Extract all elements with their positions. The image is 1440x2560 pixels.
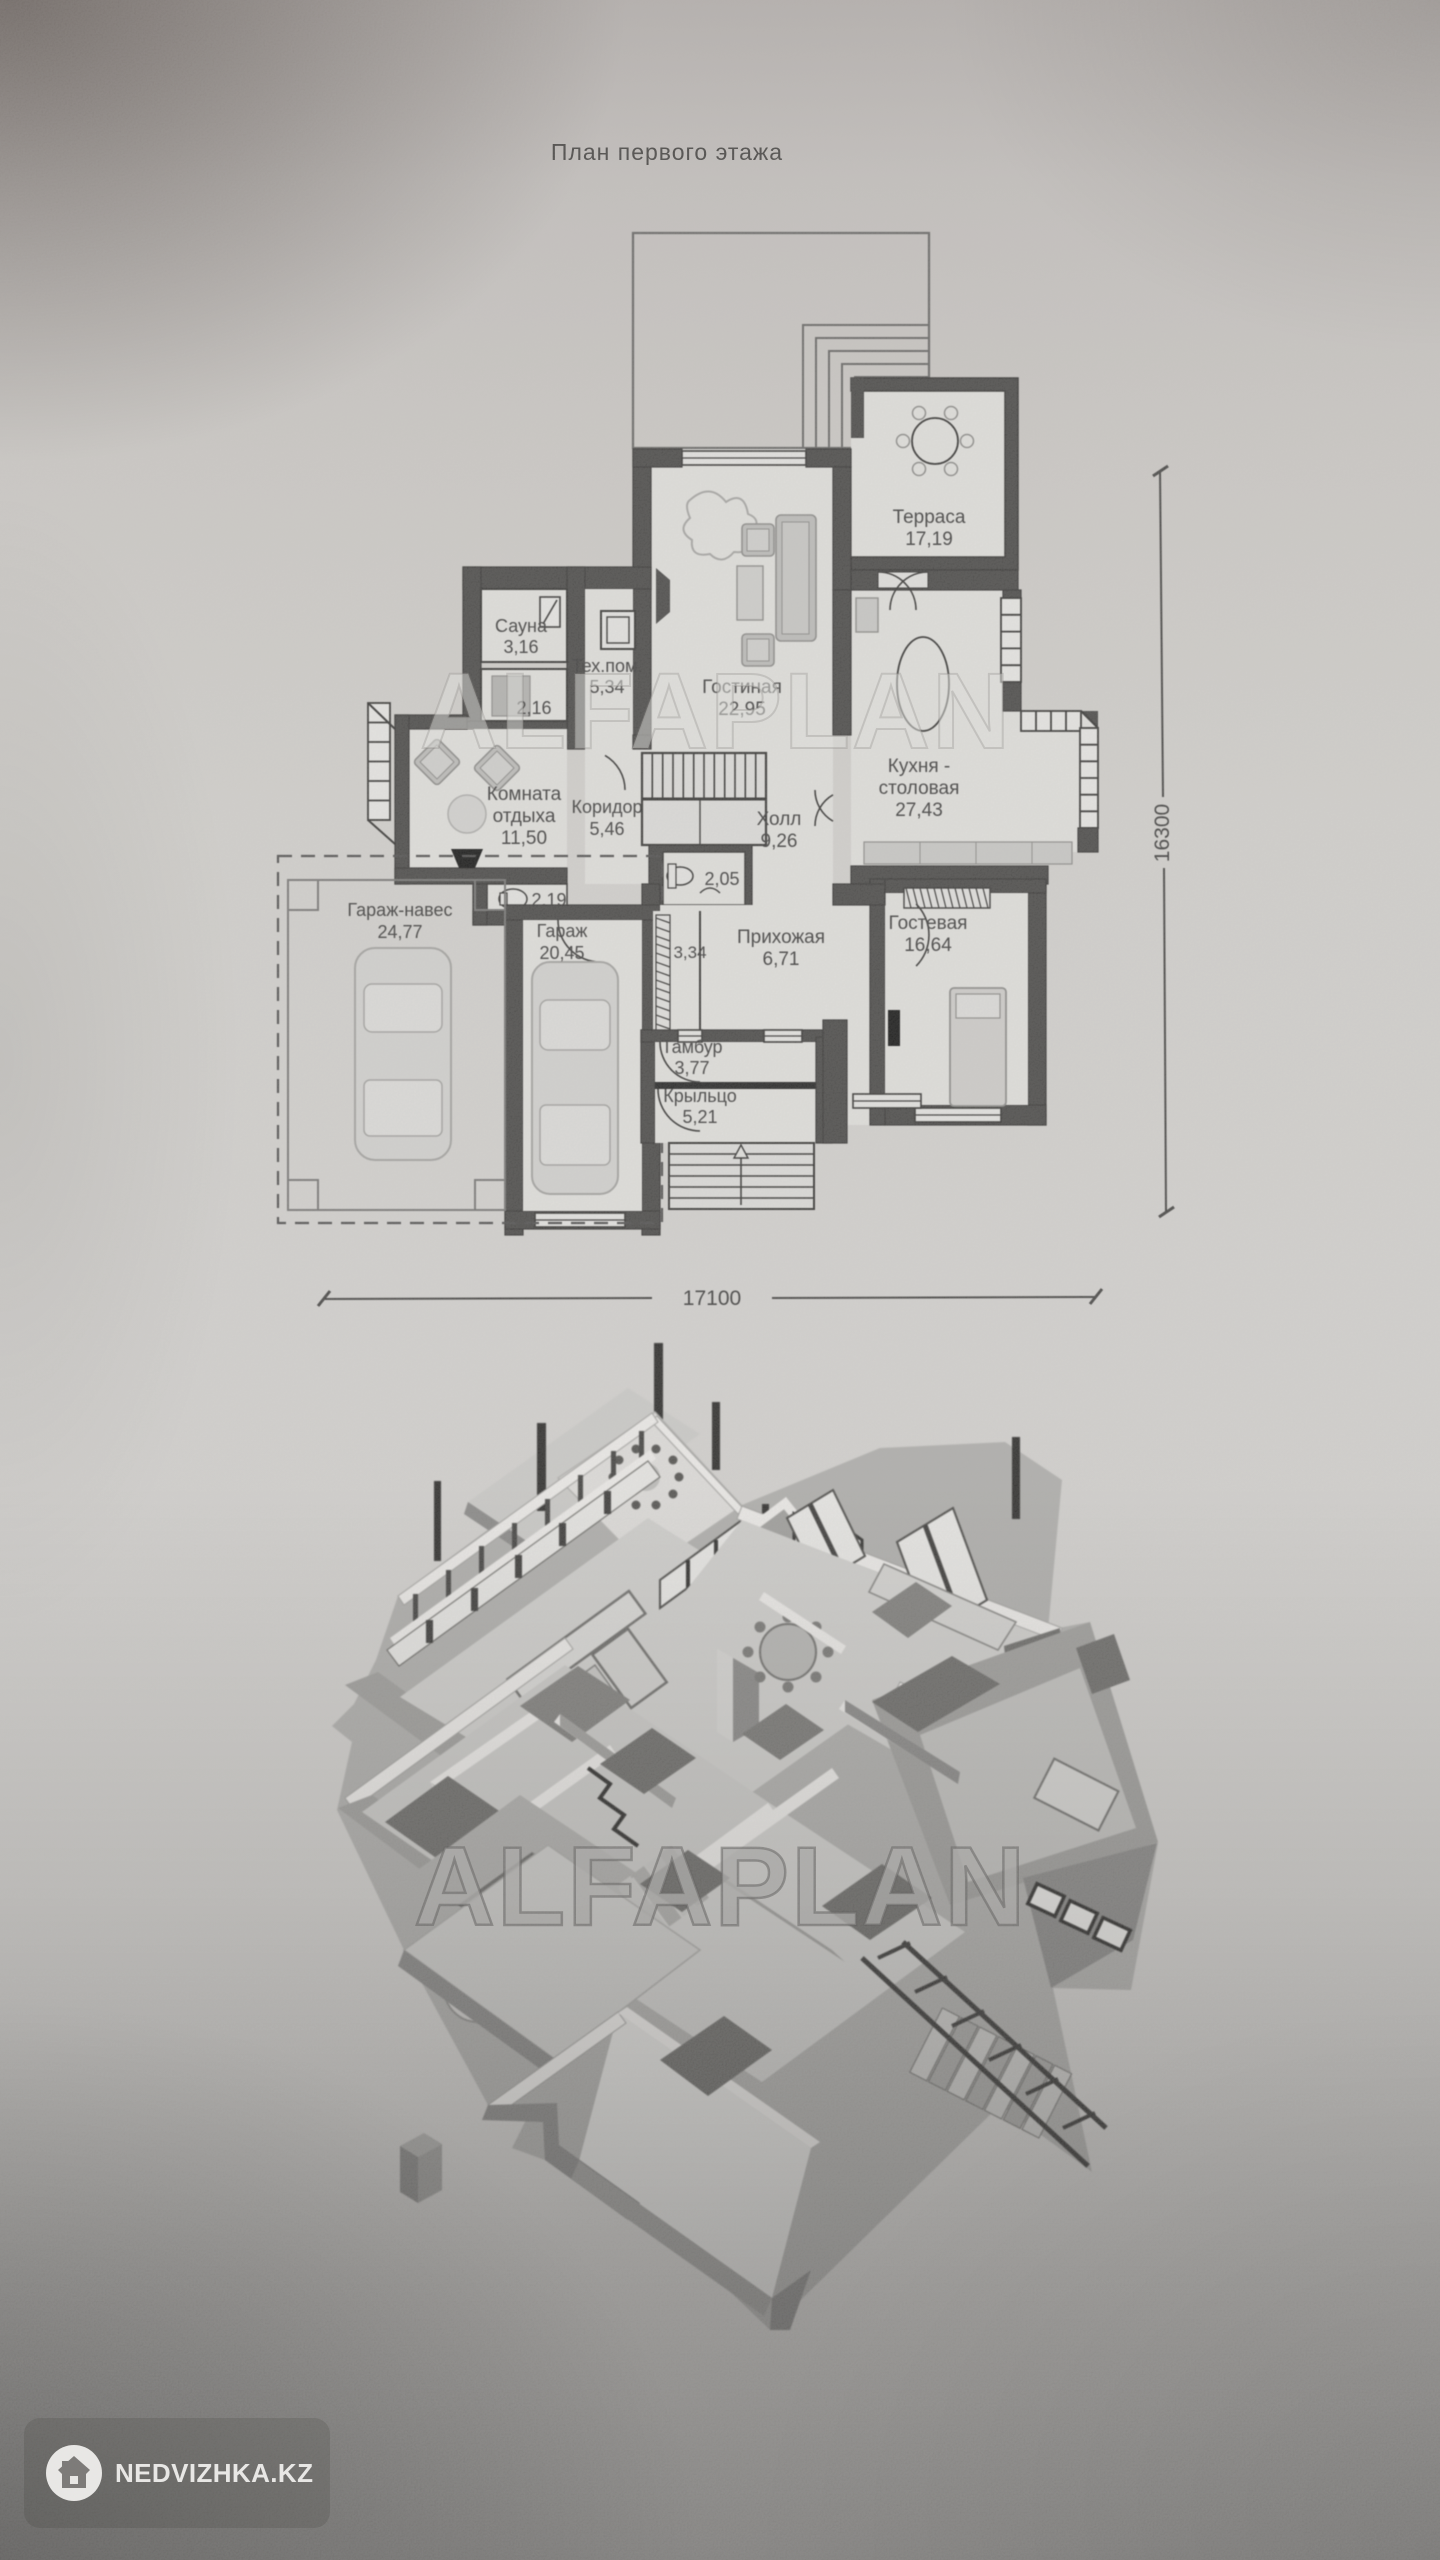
- svg-text:Гостевая: Гостевая: [889, 913, 968, 934]
- svg-text:6,71: 6,71: [763, 949, 800, 970]
- svg-text:9,26: 9,26: [761, 831, 798, 852]
- svg-text:Сауна: Сауна: [495, 616, 548, 636]
- svg-text:16300: 16300: [1151, 804, 1174, 862]
- svg-text:5,21: 5,21: [682, 1107, 717, 1127]
- svg-text:отдыха: отдыха: [493, 806, 556, 827]
- svg-text:План первого этажа: План первого этажа: [551, 139, 783, 165]
- svg-text:Гараж: Гараж: [537, 921, 588, 941]
- svg-text:17100: 17100: [683, 1287, 741, 1310]
- svg-text:3,34: 3,34: [673, 943, 706, 962]
- svg-text:Прихожая: Прихожая: [737, 927, 825, 948]
- svg-text:Тамбур: Тамбур: [661, 1037, 722, 1057]
- svg-text:5,46: 5,46: [589, 819, 624, 839]
- svg-text:столовая: столовая: [879, 778, 960, 799]
- svg-text:17,19: 17,19: [905, 529, 953, 550]
- svg-text:2,05: 2,05: [704, 869, 739, 889]
- svg-text:ALFAPLAN: ALFAPLAN: [414, 1824, 1027, 1949]
- svg-text:Крыльцо: Крыльцо: [663, 1086, 736, 1106]
- svg-text:Коридор: Коридор: [571, 797, 642, 817]
- svg-text:Терраса: Терраса: [893, 507, 966, 528]
- svg-text:Холл: Холл: [757, 809, 802, 830]
- svg-text:16,64: 16,64: [904, 935, 952, 956]
- svg-text:3,77: 3,77: [674, 1058, 709, 1078]
- svg-text:NEDVIZHKA.KZ: NEDVIZHKA.KZ: [115, 2458, 313, 2488]
- svg-text:Гараж-навес: Гараж-навес: [347, 900, 452, 920]
- svg-text:Комната: Комната: [487, 784, 562, 805]
- svg-text:11,50: 11,50: [501, 828, 547, 849]
- svg-text:24,77: 24,77: [377, 922, 422, 942]
- svg-text:20,45: 20,45: [539, 943, 584, 963]
- svg-text:27,43: 27,43: [895, 800, 943, 821]
- svg-text:ALFAPLAN: ALFAPLAN: [420, 650, 1012, 771]
